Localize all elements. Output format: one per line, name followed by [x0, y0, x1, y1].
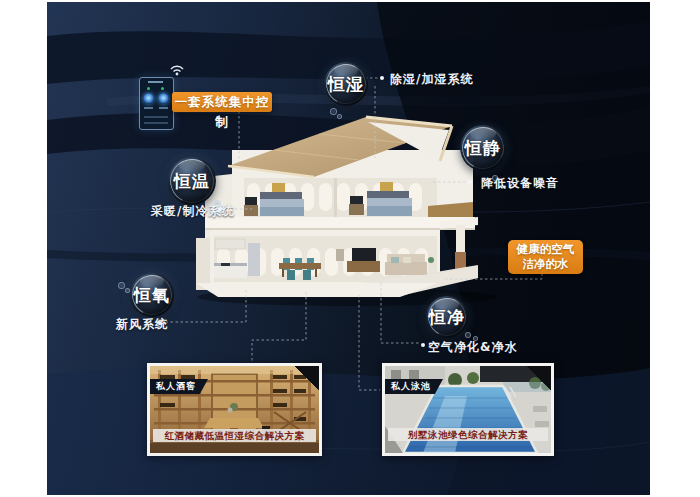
connector-dot [380, 76, 384, 80]
bubble-quiet: 恒静 [460, 125, 506, 171]
label-purity-system: 空气净化&净水 [428, 339, 517, 356]
status-dot [161, 87, 164, 90]
wine-cellar-card: 私人酒窖 红酒储藏低温恒湿综合解决方案 [147, 363, 322, 456]
mini-bubble [330, 108, 337, 115]
connector-dot [218, 207, 222, 211]
platform-front [196, 283, 438, 297]
pool-card: 私人泳池 别墅泳池绿色综合解决方案 [382, 363, 554, 456]
poster-canvas: 一套系统集中控制 健康的空气 洁净的水 恒湿 恒静 恒温 恒氧 恒净 除湿/加湿… [47, 2, 650, 495]
phone-header [148, 81, 163, 83]
pool-caption: 别墅泳池绿色综合解决方案 [388, 428, 548, 441]
mini-bubble [125, 288, 130, 293]
corner-ribbon [295, 366, 319, 390]
dial-knob-left [143, 93, 154, 104]
wifi-icon [169, 62, 185, 76]
healthy-air-line: 健康的空气 [508, 242, 583, 257]
phone-row [144, 116, 168, 118]
phone-label [159, 107, 168, 109]
healthy-air-water-callout: 健康的空气 洁净的水 [508, 240, 583, 274]
bubble-oxygen: 恒氧 [130, 273, 174, 317]
label-temperature-system: 采暖/制冷系统 [151, 203, 234, 220]
house-illustration [196, 117, 497, 306]
mini-bubble [118, 282, 125, 289]
mid-slab [205, 217, 475, 229]
bubble-humidity: 恒湿 [324, 62, 368, 106]
smart-home-control-phone [139, 77, 174, 130]
poster-page: 一套系统集中控制 健康的空气 洁净的水 恒湿 恒静 恒温 恒氧 恒净 除湿/加湿… [0, 0, 700, 497]
status-dot [147, 87, 150, 90]
label-quiet-system: 降低设备噪音 [481, 175, 559, 192]
pool-badge: 私人泳池 [385, 379, 443, 394]
corner-ribbon [527, 366, 551, 390]
clean-water-line: 洁净的水 [508, 257, 583, 272]
connector-dot [158, 321, 162, 325]
mini-bubble [337, 114, 342, 119]
mini-bubble [465, 332, 471, 338]
label-humidity-system: 除湿/加湿系统 [390, 71, 473, 88]
central-control-callout: 一套系统集中控制 [172, 92, 272, 112]
connector-dot [421, 343, 425, 347]
bubble-temperature: 恒温 [168, 157, 216, 205]
connector-dot [468, 180, 472, 184]
phone-label [144, 107, 153, 109]
bubble-purity: 恒净 [426, 296, 468, 338]
wine-cellar-badge: 私人酒窖 [150, 379, 208, 394]
wine-cellar-caption: 红酒储藏低温恒湿综合解决方案 [153, 429, 316, 442]
phone-row [144, 122, 168, 124]
dial-knob-right [158, 93, 169, 104]
